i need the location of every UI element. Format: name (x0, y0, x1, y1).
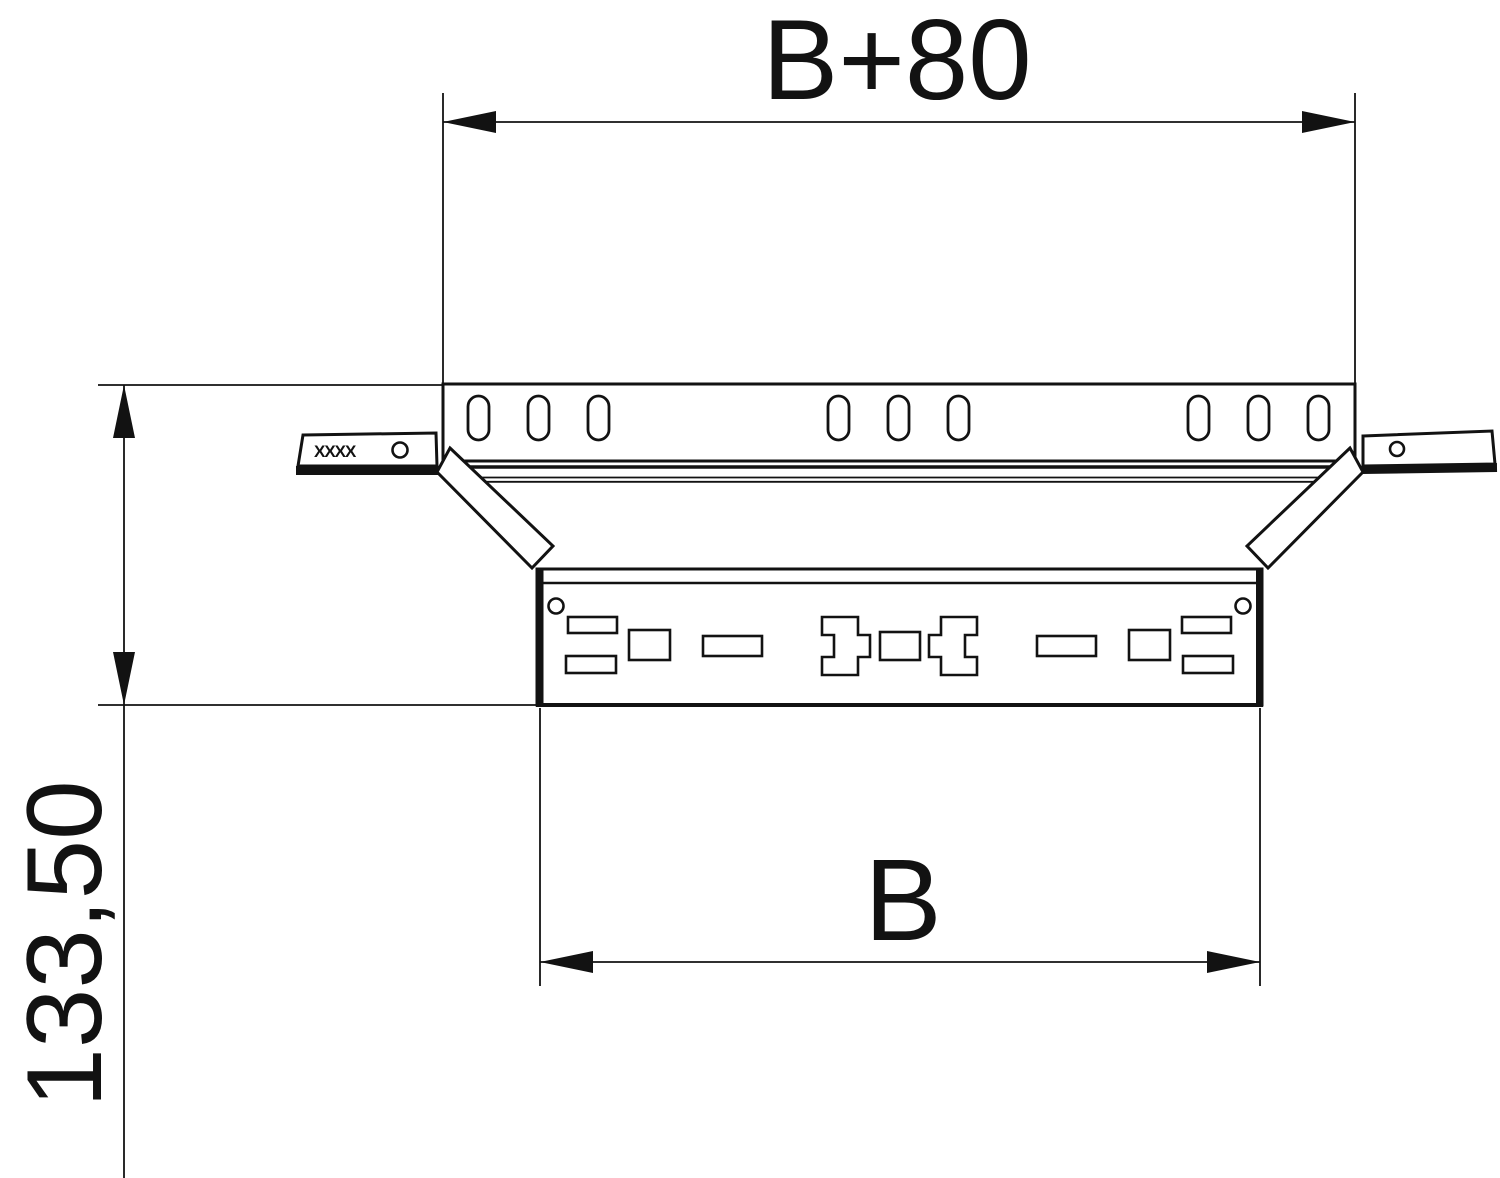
dimension-overall-width: B+80 (443, 0, 1355, 384)
slot (828, 396, 849, 440)
drawing-canvas: B+80 133,50 B (0, 0, 1500, 1178)
tab-edge-band (1362, 468, 1497, 470)
tab-rivet-hole (393, 443, 408, 458)
rivet-hole-left (549, 599, 564, 614)
brand-stamp: XXXX (314, 442, 357, 461)
dimension-branch-width: B (540, 708, 1260, 986)
branch-rail (536, 568, 1263, 706)
arrowhead-right (1207, 951, 1260, 973)
right-end-tab (1362, 431, 1497, 470)
rivet-hole-right (1236, 599, 1251, 614)
arrowhead-down (113, 652, 135, 705)
slot (948, 396, 969, 440)
left-end-tab: XXXX (296, 433, 439, 471)
dim-label-branch-width: B (864, 835, 941, 965)
technical-drawing: B+80 133,50 B (0, 0, 1500, 1178)
arrowhead-up (113, 385, 135, 438)
main-run-rail (443, 384, 1355, 461)
arrowhead-left (443, 111, 496, 133)
tray-edge-lines (452, 467, 1346, 482)
slot (1188, 396, 1209, 440)
dim-label-overall-width: B+80 (762, 0, 1031, 124)
slot (588, 396, 609, 440)
slot (1308, 396, 1329, 440)
slot (468, 396, 489, 440)
slot (528, 396, 549, 440)
branch-body (537, 569, 1262, 705)
tab-plate (1363, 431, 1495, 466)
slot (888, 396, 909, 440)
arrowhead-left (540, 951, 593, 973)
tab-rivet-hole (1390, 442, 1404, 456)
dimension-overall-height: 133,50 (4, 385, 537, 1178)
arrowhead-right (1302, 111, 1355, 133)
dim-label-overall-height: 133,50 (4, 780, 124, 1107)
rail-slots (468, 396, 1329, 440)
slot (1248, 396, 1269, 440)
